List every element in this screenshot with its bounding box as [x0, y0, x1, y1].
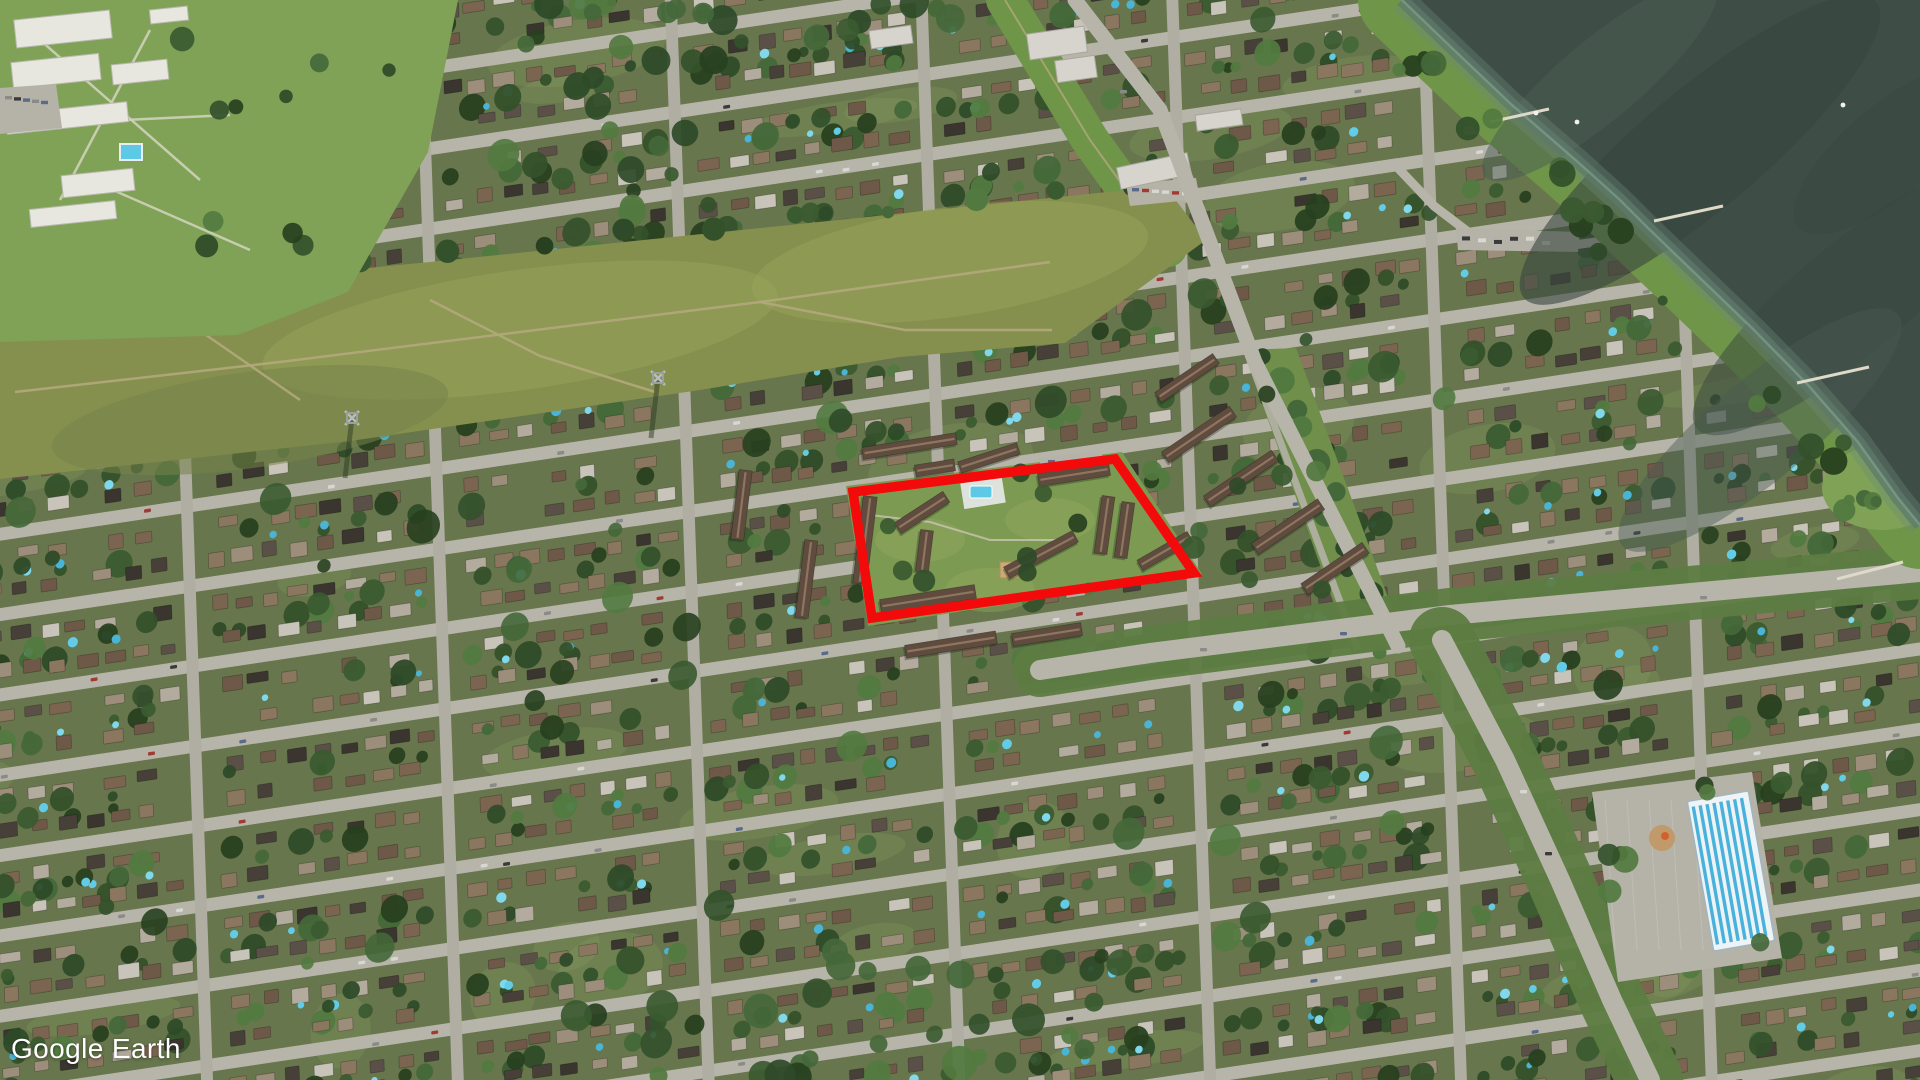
- google-earth-watermark: Google Earth: [11, 1033, 181, 1065]
- pool-facility: [1592, 772, 1782, 982]
- google-earth-viewport[interactable]: Google Earth: [0, 0, 1920, 1080]
- satellite-imagery[interactable]: [0, 0, 1920, 1080]
